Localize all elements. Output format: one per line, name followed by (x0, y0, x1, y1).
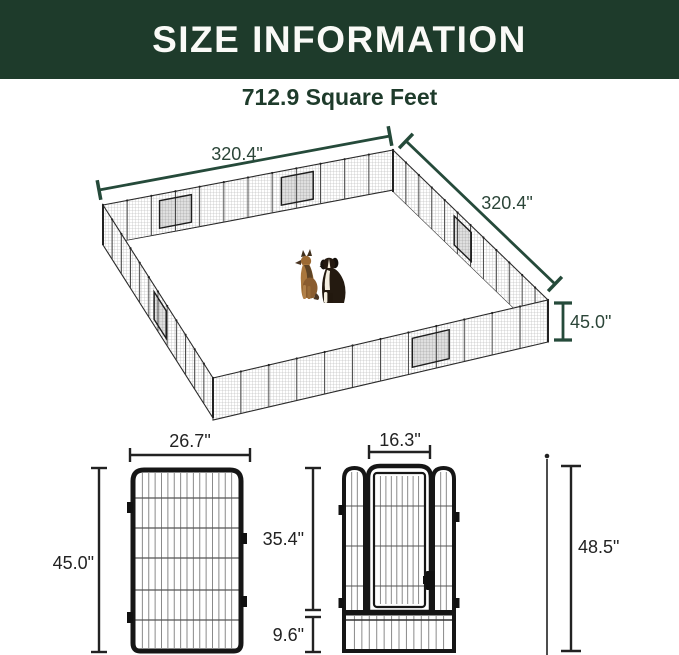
door-upper-height-label: 35.4" (263, 529, 304, 549)
door-panel-door-frame (368, 466, 431, 612)
enclosure-side-b-label: 320.4" (481, 193, 532, 213)
ground-stake-diagram (545, 454, 550, 655)
door-panel-kick-wires (354, 616, 443, 649)
door-panel-diagram (339, 466, 460, 651)
door-width-label: 16.3" (379, 430, 420, 450)
size-diagram: 320.4" 320.4" 45.0" 26.7" 45.0" (0, 0, 679, 655)
single-panel-diagram (127, 470, 247, 651)
door-panel-right-wires (434, 472, 453, 610)
stake-dimension-lines (561, 466, 581, 651)
single-panel-width-label: 26.7" (169, 431, 210, 451)
door-panel-right-frame (433, 468, 454, 612)
door-panel-left-frame (344, 468, 365, 612)
door-panel-connector-tabs (339, 505, 460, 608)
stake-height-label: 48.5" (578, 537, 619, 557)
single-panel-wires (135, 473, 239, 648)
single-panel-dimension-lines (91, 448, 250, 652)
single-panel-height-label: 45.0" (53, 553, 94, 573)
door-panel-left-wires (345, 472, 364, 610)
door-panel-door-wires (374, 476, 425, 604)
door-inner-frame (374, 473, 425, 607)
enclosure-height-label: 45.0" (570, 312, 611, 332)
enclosure-side-a-label: 320.4" (211, 144, 262, 164)
door-bottom-height-label: 9.6" (273, 625, 304, 645)
